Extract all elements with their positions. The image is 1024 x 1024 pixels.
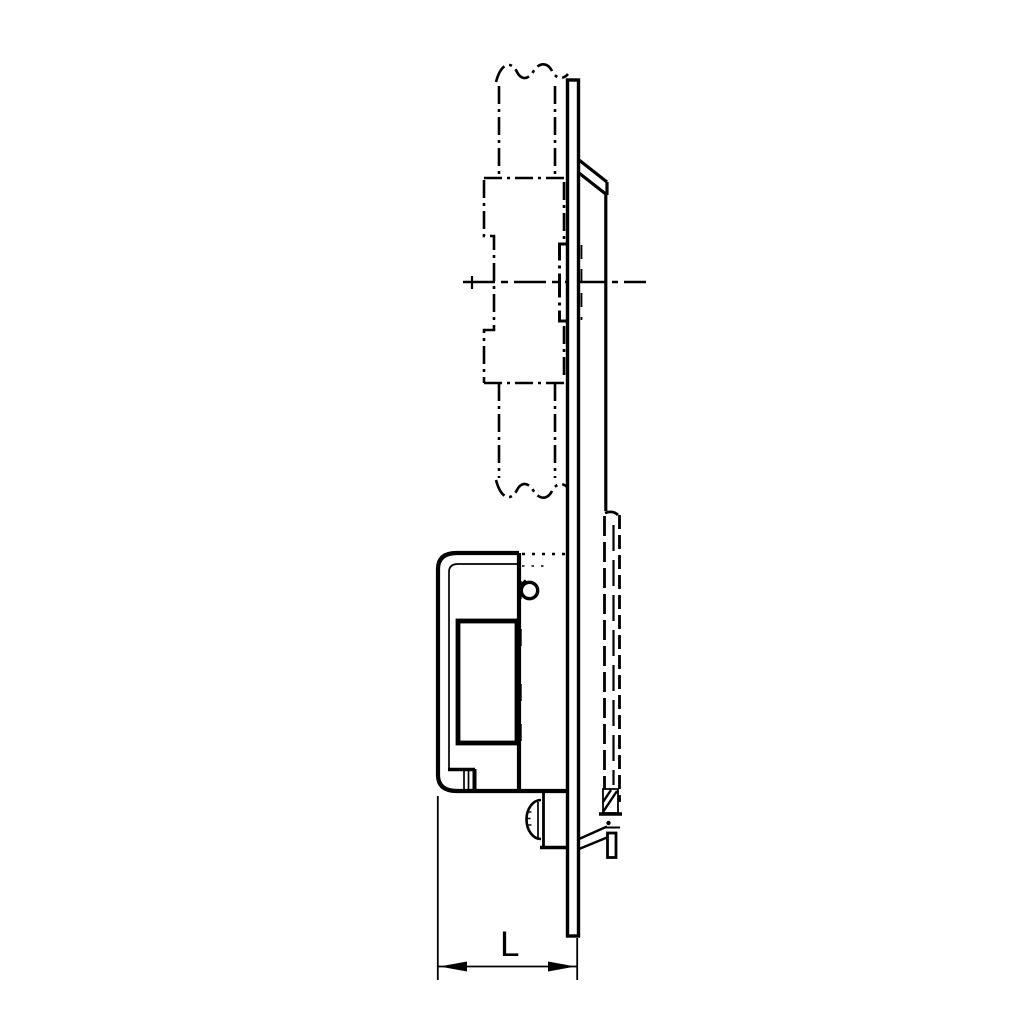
screw-head bbox=[521, 582, 537, 598]
pivot-dot bbox=[606, 821, 610, 825]
inspection-window bbox=[458, 621, 517, 743]
faceplate bbox=[568, 80, 579, 936]
dimension-label: L bbox=[500, 925, 519, 964]
drawing-canvas: L bbox=[0, 0, 1024, 1024]
drawing-background bbox=[0, 0, 1024, 1024]
technical-drawing-side-view: L bbox=[0, 0, 1024, 1024]
